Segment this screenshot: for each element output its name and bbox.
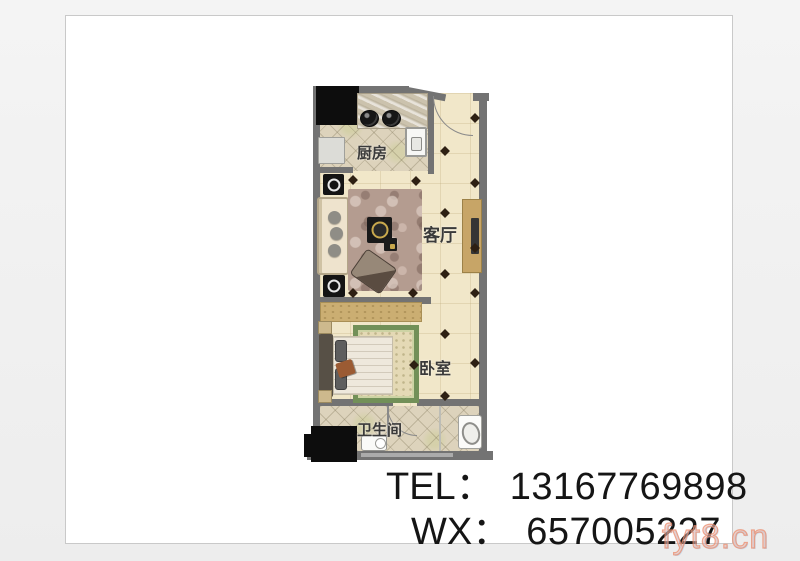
watermark: fyt8.cn [662, 518, 769, 557]
shaft-block-bottom [311, 426, 357, 462]
bedroom-label: 卧室 [419, 355, 451, 379]
living-room-label: 客厅 [423, 221, 457, 246]
sink-icon [405, 127, 427, 157]
wall-top-corner [473, 93, 489, 101]
sofa [317, 197, 349, 275]
kitchen-label: 厨房 [357, 142, 387, 163]
divider-cabinet [320, 302, 422, 322]
sofa-cushion [330, 227, 343, 240]
nightstand [318, 390, 332, 403]
shower-glass-line [439, 406, 441, 451]
nightstand [318, 321, 332, 334]
tea-tray [384, 238, 397, 251]
wall-kitchen-stub [313, 167, 353, 173]
floor-plan: 厨房 客厅 卧室 卫生间 [307, 85, 493, 467]
wx-label: WX： [411, 511, 510, 553]
tel-line: TEL：13167769898 [386, 465, 746, 510]
bathroom-label: 卫生间 [357, 419, 402, 440]
page-background: 厨房 客厅 卧室 卫生间 TEL：13167769898 WX：65700522… [0, 0, 800, 561]
pillow [335, 340, 347, 362]
bed-headboard [319, 334, 333, 397]
floorplan-card: 厨房 客厅 卧室 卫生间 TEL：13167769898 WX：65700522… [65, 15, 733, 544]
sofa-cushion [328, 244, 341, 257]
tel-label: TEL： [386, 466, 494, 508]
sofa-cushion [328, 211, 341, 224]
wall-bathroom-right [417, 399, 487, 406]
stove-burner-icon [360, 110, 379, 127]
window-sill [361, 453, 453, 457]
tel-number: 13167769898 [510, 466, 748, 508]
shaft-block-nub [304, 434, 312, 457]
fridge-icon [318, 137, 345, 164]
shaft-block-top [316, 86, 359, 125]
washbasin-icon [458, 415, 482, 449]
speaker-icon [323, 174, 344, 195]
stove-burner-icon [382, 110, 401, 127]
speaker-icon [323, 275, 345, 297]
